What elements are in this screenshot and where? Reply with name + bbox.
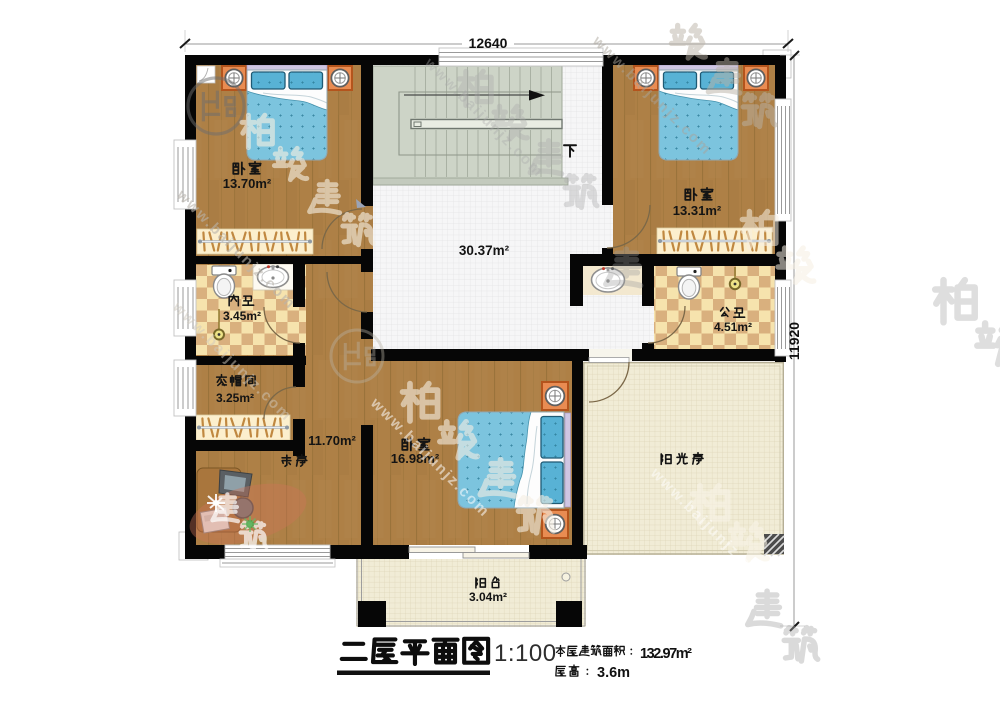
svg-text:3.25m²: 3.25m² [216,391,254,405]
svg-text:30.37m²: 30.37m² [459,243,510,258]
svg-text:3.6m: 3.6m [597,665,630,681]
svg-text:11.70m²: 11.70m² [308,433,356,448]
svg-text:3.45m²: 3.45m² [223,309,261,323]
svg-text:13.70m²: 13.70m² [223,176,272,191]
svg-text:132.97m²: 132.97m² [640,646,692,662]
svg-text:12640: 12640 [469,35,508,51]
svg-text:11920: 11920 [786,322,802,360]
svg-text:3.04m²: 3.04m² [469,590,507,604]
svg-text:13.31m²: 13.31m² [673,203,722,218]
svg-text:1:100: 1:100 [494,640,557,667]
svg-text:4.51m²: 4.51m² [714,320,752,334]
